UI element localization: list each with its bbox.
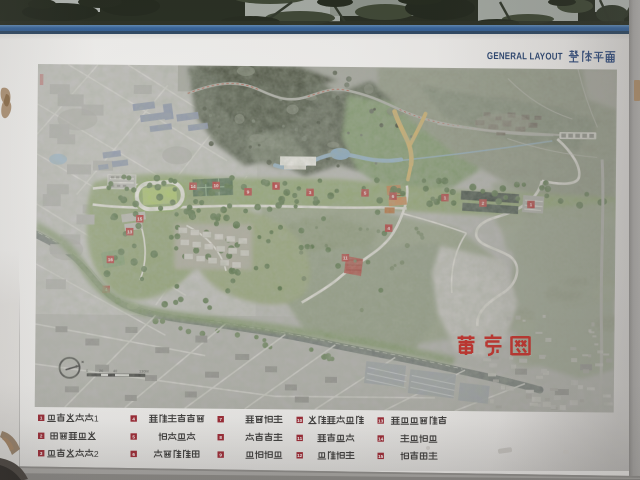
svg-text:11: 11 [297,436,302,441]
svg-text:10: 10 [297,418,303,423]
svg-text:1: 1 [40,416,43,421]
svg-text:15: 15 [378,454,384,459]
svg-text:14: 14 [378,436,384,441]
svg-text:4: 4 [132,416,135,421]
svg-text:1: 1 [94,414,99,424]
svg-text:8: 8 [219,435,222,440]
svg-text:9: 9 [219,453,222,458]
svg-text:13: 13 [378,418,384,423]
svg-text:2: 2 [94,449,99,459]
svg-text:12: 12 [297,453,303,458]
svg-text:3: 3 [40,451,43,456]
svg-text:7: 7 [219,417,222,422]
svg-text:5: 5 [132,434,135,439]
svg-text:6: 6 [132,452,135,457]
svg-text:2: 2 [40,434,43,439]
